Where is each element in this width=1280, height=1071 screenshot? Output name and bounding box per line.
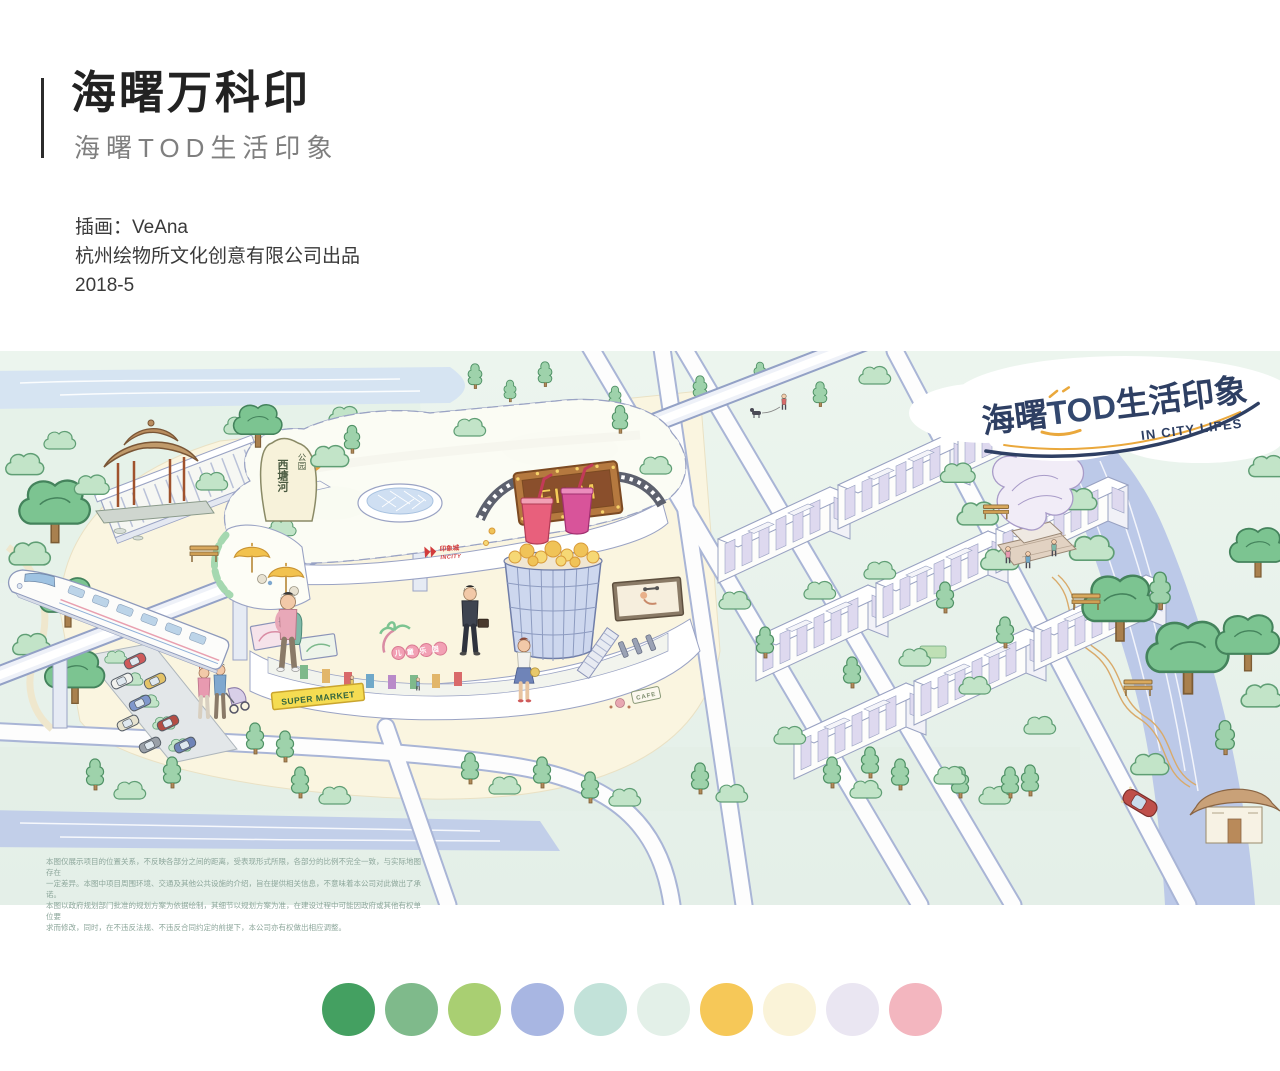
palette-swatch	[511, 983, 564, 1036]
credit-studio: 杭州绘物所文化创意有限公司出品	[75, 242, 360, 271]
palette-swatch	[826, 983, 879, 1036]
page-title: 海曙万科印	[71, 68, 311, 118]
disclaimer-text: 本图仅展示项目的位置关系，不反映各部分之间的距离，受表现形式所限，各部分的比例不…	[46, 856, 424, 933]
palette-swatch	[637, 983, 690, 1036]
river-top	[0, 367, 465, 409]
park-sign-suffix: 公园	[297, 453, 307, 471]
park-sign-name: 西塘河	[276, 459, 289, 493]
disclaimer-line: 一定差异。本图中项目周围环境、交通及其他公共设施的介绍，旨在提供相关信息，不意味…	[46, 878, 424, 900]
credit-illustrator: 插画：VeAna	[75, 213, 360, 242]
palette-swatch	[700, 983, 753, 1036]
palette-swatch	[574, 983, 627, 1036]
palette-swatch	[385, 983, 438, 1036]
credit-date: 2018-5	[75, 271, 360, 300]
disclaimer-line: 求而修改，同时，在不违反法规、不违反合同约定的前提下，本公司亦有权做出相应调整。	[46, 922, 424, 933]
palette-swatch	[448, 983, 501, 1036]
palette-swatch	[322, 983, 375, 1036]
credits-block: 插画：VeAna 杭州绘物所文化创意有限公司出品 2018-5	[75, 213, 360, 300]
rooftop-pool	[358, 484, 442, 522]
color-palette	[322, 983, 942, 1036]
title-accent-bar	[41, 78, 44, 158]
palette-swatch	[763, 983, 816, 1036]
palette-swatch	[889, 983, 942, 1036]
disclaimer-line: 本图以政府规划部门批准的规划方案为依据绘制，其细节以规划方案为准，在建设过程中可…	[46, 900, 424, 922]
design-poster-page: { "header": { "title": "海曙万科印", "subtitl…	[0, 0, 1280, 1071]
page-subtitle: 海曙TOD生活印象	[74, 128, 338, 165]
disclaimer-line: 本图仅展示项目的位置关系，不反映各部分之间的距离，受表现形式所限，各部分的比例不…	[46, 856, 424, 878]
tod-illustration: 印象城 INCITY	[0, 351, 1280, 905]
